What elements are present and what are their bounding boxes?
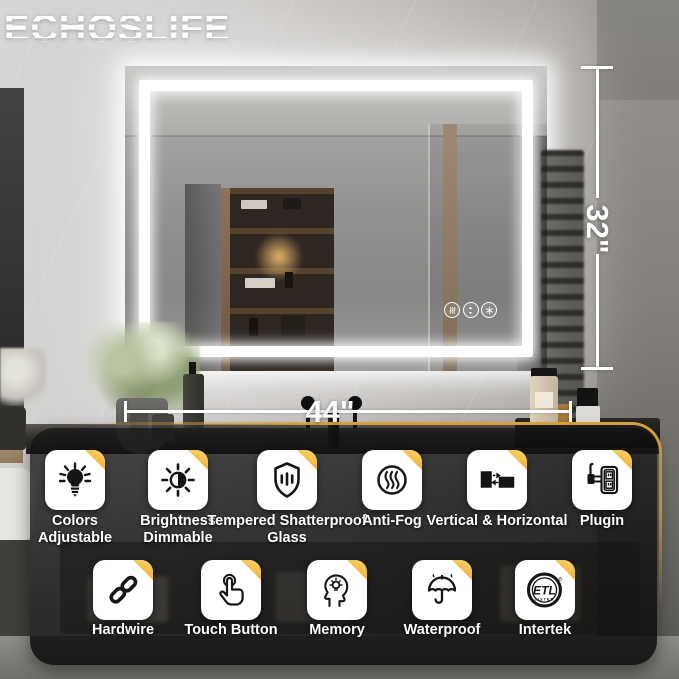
width-dimension-tick bbox=[124, 401, 127, 422]
feature-label: Intertek bbox=[485, 622, 605, 639]
plug-outlet-icon bbox=[582, 460, 622, 500]
dimmer-icon bbox=[466, 306, 475, 315]
left-cabinet-side bbox=[0, 540, 30, 642]
product-image: 44" 32" Colors Adjustable bbox=[0, 0, 679, 679]
feature-tile-orientation bbox=[467, 450, 527, 510]
defog-icon bbox=[448, 306, 457, 315]
bottle-label bbox=[535, 392, 553, 408]
feature-label: Colors Adjustable bbox=[15, 513, 135, 547]
memory-head-icon bbox=[317, 570, 357, 610]
feature-tile-memory bbox=[307, 560, 367, 620]
height-dimension-label: 32" bbox=[579, 159, 615, 299]
brand-logo: ECHOSLIFE bbox=[4, 8, 230, 51]
feature-tile-antifog bbox=[362, 450, 422, 510]
height-dimension-tick bbox=[581, 66, 613, 69]
dimmer-button[interactable] bbox=[463, 302, 479, 318]
feature-label: Memory bbox=[277, 622, 397, 639]
anti-fog-icon bbox=[372, 460, 412, 500]
color-temp-button[interactable] bbox=[481, 302, 497, 318]
color-bulb-icon bbox=[55, 460, 95, 500]
etl-subtext: LISTED bbox=[535, 597, 555, 601]
feature-label: Hardwire bbox=[63, 622, 183, 639]
feature-tile-hardwire bbox=[93, 560, 153, 620]
wall-seam bbox=[597, 0, 679, 100]
width-dimension-label: 44" bbox=[260, 394, 400, 430]
feature-tile-colors bbox=[45, 450, 105, 510]
umbrella-icon bbox=[422, 570, 462, 610]
feature-tile-plugin bbox=[572, 450, 632, 510]
flower-vase bbox=[0, 406, 26, 450]
etl-listed-icon: ETL LISTED ® bbox=[523, 568, 567, 612]
soap-bottle bbox=[183, 374, 204, 428]
brightness-icon bbox=[158, 460, 198, 500]
etl-registered-mark: ® bbox=[558, 576, 562, 583]
height-dimension-tick bbox=[581, 367, 613, 370]
defog-button[interactable] bbox=[444, 302, 460, 318]
feature-tile-waterproof bbox=[412, 560, 472, 620]
feature-label: Waterproof bbox=[382, 622, 502, 639]
white-flowers bbox=[0, 348, 46, 412]
feature-label: Plugin bbox=[542, 513, 662, 530]
feature-tile-tempered bbox=[257, 450, 317, 510]
chain-icon bbox=[103, 570, 143, 610]
width-dimension-tick bbox=[569, 401, 572, 422]
etl-text: ETL bbox=[533, 583, 556, 597]
orientation-icon bbox=[477, 460, 517, 500]
feature-tile-touch bbox=[201, 560, 261, 620]
black-bottle bbox=[577, 388, 598, 408]
shield-glass-icon bbox=[267, 460, 307, 500]
color-temp-icon bbox=[485, 306, 494, 315]
feature-tile-intertek: ETL LISTED ® bbox=[515, 560, 575, 620]
touch-hand-icon bbox=[211, 570, 251, 610]
feature-label: Touch Button bbox=[171, 622, 291, 639]
feature-tile-brightness bbox=[148, 450, 208, 510]
